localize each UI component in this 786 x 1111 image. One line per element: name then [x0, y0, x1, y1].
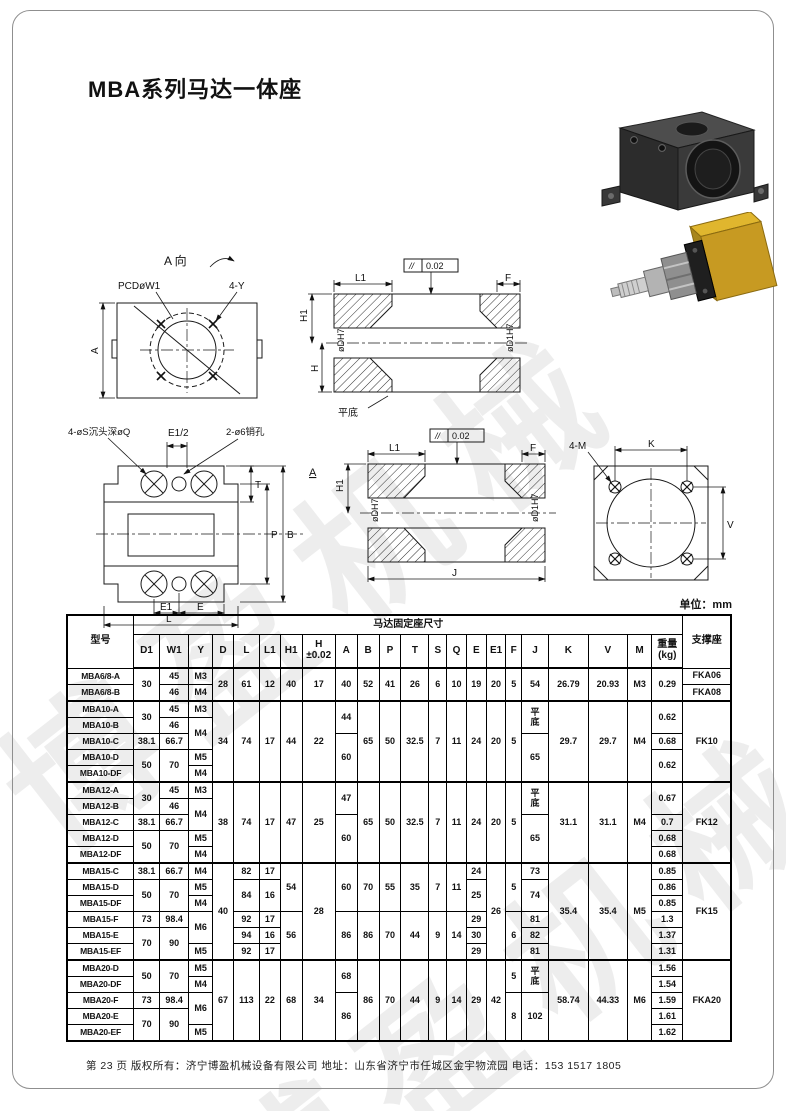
model-cell: MBA12-B — [67, 799, 134, 815]
spec-cell: 66.7 — [160, 815, 189, 831]
drawing-end-view: 4-M K V — [566, 436, 738, 588]
spec-cell: 1.61 — [652, 1009, 683, 1025]
dim-bore-label: øDH7 — [370, 498, 380, 522]
column-header-6: H1 — [280, 635, 302, 669]
spec-cell: 81 — [522, 912, 549, 928]
spec-cell: 29.7 — [549, 701, 589, 782]
column-header-17: J — [522, 635, 549, 669]
spec-cell: 平 底 — [522, 701, 549, 734]
spec-cell: 90 — [160, 1009, 189, 1042]
spec-cell: 67 — [213, 960, 234, 1041]
column-header-10: P — [379, 635, 401, 669]
column-header-14: E — [466, 635, 486, 669]
catalog-page: 博盈机械 博盈机械 MBA系列马达一体座 — [0, 0, 786, 1111]
spec-cell: M4 — [189, 799, 213, 831]
spec-cell: M3 — [189, 668, 213, 685]
spec-cell: 25 — [466, 880, 486, 912]
column-header-12: S — [429, 635, 447, 669]
spec-cell: 11 — [447, 863, 467, 912]
model-cell: MBA10-B — [67, 718, 134, 734]
spec-cell: M4 — [189, 685, 213, 702]
spec-cell: 50 — [134, 750, 160, 783]
view-a-label: A 向 — [164, 253, 187, 268]
dim-e1-label: E1 — [160, 602, 173, 613]
spec-cell: 29 — [466, 912, 486, 928]
spec-cell: 40 — [280, 668, 302, 701]
spec-cell: 38.1 — [134, 734, 160, 750]
spec-cell: 0.62 — [652, 701, 683, 734]
spec-cell: 54 — [522, 668, 549, 701]
spec-cell: 7 — [429, 701, 447, 782]
column-header-7: H ±0.02 — [302, 635, 335, 669]
spec-cell: 7 — [429, 782, 447, 863]
spec-cell: 52 — [357, 668, 379, 701]
spec-cell: 5 — [506, 782, 522, 863]
drawing-section-bottom: // 0.02 L1 F H1 øDH7 øD1H7 J — [330, 426, 568, 594]
dim-b-label: B — [287, 530, 294, 541]
spec-cell: 90 — [160, 928, 189, 961]
model-cell: MBA15-F — [67, 912, 134, 928]
spec-cell: 82 — [522, 928, 549, 944]
spec-cell: 50 — [379, 701, 401, 782]
spec-cell: 70 — [160, 831, 189, 864]
dim-e-label: E — [197, 602, 204, 613]
spec-cell: 56 — [280, 912, 302, 961]
spec-cell: 24 — [466, 863, 486, 880]
spec-cell: M4 — [628, 782, 652, 863]
unit-label: 单位：mm — [520, 596, 732, 612]
model-cell: MBA15-EF — [67, 944, 134, 961]
spec-cell: 35.4 — [549, 863, 589, 960]
spec-cell: 70 — [160, 750, 189, 783]
model-cell: MBA20-EF — [67, 1025, 134, 1042]
spec-cell: 1.56 — [652, 960, 683, 977]
column-header-3: D — [213, 635, 234, 669]
spec-cell: 86 — [357, 960, 379, 1041]
spec-cell: 17 — [259, 944, 280, 961]
spec-cell: 9 — [429, 912, 447, 961]
spec-cell: 46 — [160, 799, 189, 815]
page-title: MBA系列马达一体座 — [88, 72, 302, 104]
spec-cell: 40 — [213, 863, 234, 960]
column-header-16: F — [506, 635, 522, 669]
spec-cell: 44 — [401, 912, 429, 961]
spec-cell: 1.31 — [652, 944, 683, 961]
column-header-1: W1 — [160, 635, 189, 669]
spec-cell: 9 — [429, 960, 447, 1041]
dim-p-label: P — [271, 530, 278, 541]
dim-a-label: A — [90, 347, 101, 354]
model-cell: MBA20-E — [67, 1009, 134, 1025]
counterbore-label: 4-øS沉头深øQ — [68, 426, 130, 438]
flat-bottom-label: 平底 — [338, 406, 358, 419]
spec-cell: 5 — [506, 863, 522, 912]
spec-cell: M4 — [189, 718, 213, 750]
column-header-21: 重量 (kg) — [652, 635, 683, 669]
spec-cell: 20.93 — [588, 668, 628, 701]
spec-cell: 0.85 — [652, 896, 683, 912]
spec-cell: 22 — [259, 960, 280, 1041]
spec-cell: 92 — [233, 944, 259, 961]
model-cell: MBA12-C — [67, 815, 134, 831]
spec-cell: 70 — [379, 912, 401, 961]
spec-cell: 6 — [506, 912, 522, 961]
spec-cell: 74 — [233, 701, 259, 782]
spec-cell: 1.62 — [652, 1025, 683, 1042]
spec-cell: 70 — [357, 863, 379, 912]
model-cell: MBA15-DF — [67, 896, 134, 912]
dim-h1-label: H1 — [335, 479, 346, 492]
spec-cell: 7 — [429, 863, 447, 912]
spec-cell: 86 — [357, 912, 379, 961]
tolerance-value: 0.02 — [426, 261, 444, 271]
spec-cell: 1.37 — [652, 928, 683, 944]
model-cell: MBA10-D — [67, 750, 134, 766]
spec-cell: 45 — [160, 782, 189, 799]
spec-cell: 0.62 — [652, 750, 683, 783]
spec-cell: 92 — [233, 912, 259, 928]
spec-cell: M5 — [189, 831, 213, 847]
spec-cell: 17 — [259, 701, 280, 782]
page-footer: 第 23 页 版权所有：济宁博盈机械设备有限公司 地址：山东省济宁市任城区金宇物… — [86, 1058, 621, 1073]
spec-cell: 5 — [506, 668, 522, 701]
spec-cell: 16 — [259, 880, 280, 912]
dim-f-label: F — [530, 443, 536, 454]
spec-cell: 16 — [259, 928, 280, 944]
spec-cell: M5 — [189, 750, 213, 766]
model-cell: MBA20-D — [67, 960, 134, 977]
spec-cell: 45 — [160, 668, 189, 685]
spec-cell: 17 — [302, 668, 335, 701]
spec-cell: 73 — [134, 993, 160, 1009]
spec-cell: 平 底 — [522, 782, 549, 815]
spec-cell: 38 — [213, 782, 234, 863]
spec-cell: 35.4 — [588, 863, 628, 960]
view-direction-label: A — [309, 467, 317, 479]
dim-h1-label: H1 — [299, 309, 310, 322]
support-cell: FKA08 — [683, 685, 731, 702]
spec-cell: 98.4 — [160, 912, 189, 928]
model-cell: MBA6/8-A — [67, 668, 134, 685]
model-cell: MBA10-A — [67, 701, 134, 718]
spec-cell: 26 — [486, 863, 506, 960]
spec-cell: 60 — [335, 863, 357, 912]
spec-cell: 70 — [134, 928, 160, 961]
spec-cell: 94 — [233, 928, 259, 944]
spec-cell: 50 — [379, 782, 401, 863]
spec-cell: M4 — [189, 977, 213, 993]
model-cell: MBA20-F — [67, 993, 134, 1009]
spec-cell: 38.1 — [134, 863, 160, 880]
column-header-0: D1 — [134, 635, 160, 669]
spec-cell: 32.5 — [401, 782, 429, 863]
support-cell: FK10 — [683, 701, 731, 782]
spec-cell: 65 — [522, 734, 549, 783]
spec-cell: 35 — [401, 863, 429, 912]
spec-cell: 19 — [466, 668, 486, 701]
spec-cell: 20 — [486, 668, 506, 701]
column-header-4: L — [233, 635, 259, 669]
spec-cell: 44 — [335, 701, 357, 734]
spec-cell: 74 — [233, 782, 259, 863]
dims-group-header: 马达固定座尺寸 — [134, 615, 683, 635]
spec-cell: 20 — [486, 701, 506, 782]
spec-cell: 29 — [466, 960, 486, 1041]
spec-cell: 34 — [302, 960, 335, 1041]
spec-cell: 68 — [335, 960, 357, 993]
column-header-13: Q — [447, 635, 467, 669]
spec-cell: 58.74 — [549, 960, 589, 1041]
column-header-11: T — [401, 635, 429, 669]
spec-cell: 60 — [335, 734, 357, 783]
spec-cell: 86 — [335, 993, 357, 1042]
spec-cell: 47 — [280, 782, 302, 863]
spec-cell: 5 — [506, 960, 522, 993]
dim-j-label: J — [452, 568, 457, 579]
dim-h-label: H — [310, 365, 321, 372]
model-cell: MBA12-A — [67, 782, 134, 799]
tolerance-symbol: // — [408, 261, 416, 271]
column-header-5: L1 — [259, 635, 280, 669]
dim-f-label: F — [505, 273, 511, 284]
spec-cell: 31.1 — [549, 782, 589, 863]
spec-cell: 41 — [379, 668, 401, 701]
spec-cell: 42 — [486, 960, 506, 1041]
spec-cell: M3 — [189, 782, 213, 799]
spec-cell: 30 — [134, 668, 160, 701]
model-cell: MBA10-C — [67, 734, 134, 750]
dim-bore2-label: øD1H7 — [505, 323, 515, 352]
spec-cell: 73 — [522, 863, 549, 880]
spec-cell: 30 — [466, 928, 486, 944]
spec-cell: 40 — [335, 668, 357, 701]
spec-cell: 50 — [134, 960, 160, 993]
model-cell: MBA20-DF — [67, 977, 134, 993]
column-header-20: M — [628, 635, 652, 669]
spec-cell: M4 — [628, 701, 652, 782]
model-column-header: 型号 — [67, 615, 134, 668]
spec-cell: 44 — [280, 701, 302, 782]
spec-cell: 70 — [134, 1009, 160, 1042]
spec-cell: 31.1 — [588, 782, 628, 863]
spec-cell: 17 — [259, 863, 280, 880]
spec-cell: 24 — [466, 782, 486, 863]
dim-bore-label: øDH7 — [336, 328, 346, 352]
model-cell: MBA10-DF — [67, 766, 134, 783]
model-cell: MBA6/8-B — [67, 685, 134, 702]
support-cell: FKA20 — [683, 960, 731, 1041]
spec-cell: 10 — [447, 668, 467, 701]
spec-cell: 26.79 — [549, 668, 589, 701]
support-column-header: 支撑座 — [683, 615, 731, 668]
spec-cell: 0.7 — [652, 815, 683, 831]
spec-cell: 0.67 — [652, 782, 683, 815]
dim-bore2-label: øD1H7 — [530, 493, 540, 522]
drawing-front-view: 4-øS沉头深øQ E1/2 2-ø6销孔 T P B A — [66, 424, 334, 632]
dim-l1-label: L1 — [389, 443, 401, 454]
spec-cell: 113 — [233, 960, 259, 1041]
spec-cell: M5 — [189, 944, 213, 961]
column-header-8: A — [335, 635, 357, 669]
spec-cell: 26 — [401, 668, 429, 701]
spec-cell: 1.3 — [652, 912, 683, 928]
spec-cell: M4 — [189, 847, 213, 864]
spec-cell: 1.59 — [652, 993, 683, 1009]
spec-cell: M3 — [189, 701, 213, 718]
column-header-15: E1 — [486, 635, 506, 669]
spec-cell: 50 — [134, 831, 160, 864]
spec-cell: 11 — [447, 701, 467, 782]
spec-cell: 1.54 — [652, 977, 683, 993]
pin-half-label: E1/2 — [168, 428, 189, 439]
model-cell: MBA15-E — [67, 928, 134, 944]
model-cell: MBA12-DF — [67, 847, 134, 864]
column-header-18: K — [549, 635, 589, 669]
spec-cell: 11 — [447, 782, 467, 863]
spec-cell: 46 — [160, 718, 189, 734]
spec-cell: M3 — [628, 668, 652, 701]
spec-cell: 55 — [379, 863, 401, 912]
spec-cell: 20 — [486, 782, 506, 863]
spec-cell: 54 — [280, 863, 302, 912]
spec-cell: 29 — [466, 944, 486, 961]
spec-cell: 66.7 — [160, 734, 189, 750]
spec-cell: 0.86 — [652, 880, 683, 896]
column-header-19: V — [588, 635, 628, 669]
spec-cell: M4 — [189, 896, 213, 912]
spec-cell: 5 — [506, 701, 522, 782]
spec-cell: 46 — [160, 685, 189, 702]
spec-cell: M5 — [189, 880, 213, 896]
spec-cell: 38.1 — [134, 815, 160, 831]
spec-cell: 82 — [233, 863, 259, 880]
dim-v-label: V — [727, 520, 734, 531]
spec-cell: M4 — [189, 766, 213, 783]
spec-cell: 74 — [522, 880, 549, 912]
spec-cell: 61 — [233, 668, 259, 701]
tolerance-value: 0.02 — [452, 431, 470, 441]
dim-t-label: T — [255, 480, 261, 491]
spec-cell: 68 — [280, 960, 302, 1041]
support-cell: FKA06 — [683, 668, 731, 685]
spec-cell: 29.7 — [588, 701, 628, 782]
spec-cell: 102 — [522, 993, 549, 1042]
support-cell: FK12 — [683, 782, 731, 863]
spec-cell: 50 — [134, 880, 160, 912]
spec-cell: 0.68 — [652, 847, 683, 864]
spec-cell: M6 — [628, 960, 652, 1041]
spec-cell: 86 — [335, 912, 357, 961]
spec-cell: 14 — [447, 960, 467, 1041]
spec-cell: 0.68 — [652, 831, 683, 847]
spec-cell: 30 — [134, 701, 160, 734]
spec-cell: M5 — [189, 960, 213, 977]
spec-cell: 84 — [233, 880, 259, 912]
dim-l1-label: L1 — [355, 273, 367, 284]
spec-table: 型号 马达固定座尺寸 支撑座 D1W1YDLL1H1H ±0.02ABPTSQE… — [66, 614, 732, 1042]
column-header-2: Y — [189, 635, 213, 669]
drawing-view-a: A 向 PCDøW1 4-Y A — [72, 248, 287, 430]
spec-cell: 66.7 — [160, 863, 189, 880]
model-cell: MBA12-D — [67, 831, 134, 847]
spec-cell: 平 底 — [522, 960, 549, 993]
spec-cell: 8 — [506, 993, 522, 1042]
spec-cell: M6 — [189, 912, 213, 944]
spec-cell: 6 — [429, 668, 447, 701]
spec-cell: 70 — [160, 960, 189, 993]
drawing-section-top: // 0.02 L1 F H1 øDH7 H øD1H7 平底 — [292, 256, 547, 424]
spec-cell: 32.5 — [401, 701, 429, 782]
pcd-label: PCDøW1 — [118, 281, 161, 292]
spec-cell: 22 — [302, 701, 335, 782]
tolerance-symbol: // — [434, 431, 442, 441]
spec-cell: 17 — [259, 782, 280, 863]
spec-cell: 65 — [522, 815, 549, 864]
spec-cell: 25 — [302, 782, 335, 863]
spec-cell: 0.29 — [652, 668, 683, 701]
model-cell: MBA15-D — [67, 880, 134, 896]
spec-cell: M5 — [628, 863, 652, 960]
corner-holes-label: 4-Y — [229, 281, 245, 292]
spec-cell: M6 — [189, 993, 213, 1025]
spec-cell: 17 — [259, 912, 280, 928]
spec-cell: 98.4 — [160, 993, 189, 1009]
spec-cell: 28 — [213, 668, 234, 701]
spec-cell: 81 — [522, 944, 549, 961]
model-cell: MBA15-C — [67, 863, 134, 880]
product-photo-bracket — [582, 92, 772, 222]
spec-cell: 45 — [160, 701, 189, 718]
spec-cell: 60 — [335, 815, 357, 864]
spec-cell: 47 — [335, 782, 357, 815]
spec-cell: 30 — [134, 782, 160, 815]
spec-cell: 28 — [302, 863, 335, 960]
spec-cell: 0.85 — [652, 863, 683, 880]
spec-cell: 14 — [447, 912, 467, 961]
product-photo-assembly — [592, 212, 786, 352]
spec-cell: 24 — [466, 701, 486, 782]
spec-cell: 65 — [357, 782, 379, 863]
spec-cell: M4 — [189, 863, 213, 880]
spec-cell: 44.33 — [588, 960, 628, 1041]
spec-cell: 44 — [401, 960, 429, 1041]
corner-tap-label: 4-M — [569, 441, 586, 452]
spec-cell: 70 — [379, 960, 401, 1041]
spec-cell: 12 — [259, 668, 280, 701]
pin-holes-label: 2-ø6销孔 — [226, 426, 265, 438]
support-cell: FK15 — [683, 863, 731, 960]
spec-cell: 70 — [160, 880, 189, 912]
spec-cell: M5 — [189, 1025, 213, 1042]
spec-cell: 0.68 — [652, 734, 683, 750]
spec-cell: 34 — [213, 701, 234, 782]
spec-cell: 65 — [357, 701, 379, 782]
spec-cell: 73 — [134, 912, 160, 928]
dim-k-label: K — [648, 439, 655, 450]
column-header-9: B — [357, 635, 379, 669]
